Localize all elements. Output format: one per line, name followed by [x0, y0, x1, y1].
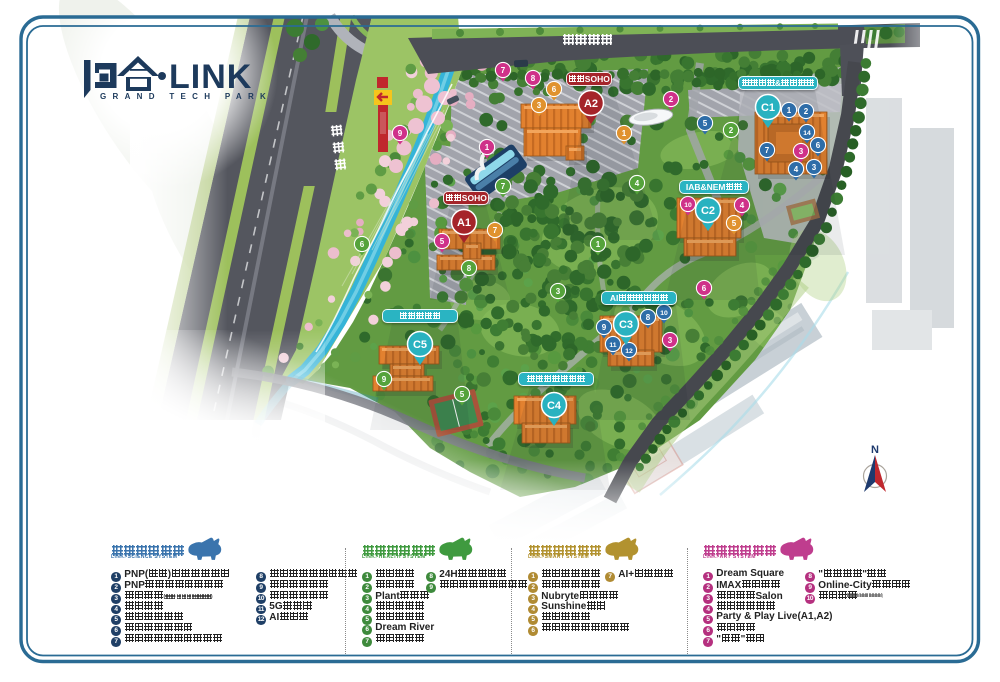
svg-text:9: 9	[602, 323, 607, 332]
svg-text:A1: A1	[457, 217, 471, 229]
svg-text:C1: C1	[761, 102, 775, 114]
svg-text:10: 10	[660, 310, 668, 317]
svg-text:6: 6	[360, 240, 365, 249]
svg-text:3: 3	[556, 287, 561, 296]
svg-text:7: 7	[501, 66, 506, 75]
svg-text:5: 5	[732, 219, 737, 228]
svg-text:7: 7	[493, 226, 498, 235]
svg-text:C5: C5	[413, 339, 427, 351]
svg-text:8: 8	[646, 313, 651, 322]
svg-text:6: 6	[702, 284, 707, 293]
svg-text:3: 3	[668, 336, 673, 345]
svg-text:2: 2	[804, 107, 809, 116]
svg-text:A2: A2	[584, 98, 598, 110]
svg-text:1: 1	[622, 129, 627, 138]
svg-text:6: 6	[816, 141, 821, 150]
svg-text:5: 5	[703, 119, 708, 128]
svg-text:4: 4	[635, 179, 640, 188]
svg-text:11: 11	[609, 342, 616, 349]
svg-text:5: 5	[440, 237, 445, 246]
svg-text:C3: C3	[619, 319, 633, 331]
svg-text:4: 4	[740, 201, 745, 210]
svg-text:7: 7	[765, 146, 770, 155]
svg-text:6: 6	[552, 85, 557, 94]
svg-text:8: 8	[467, 264, 472, 273]
svg-text:9: 9	[382, 375, 387, 384]
svg-text:1: 1	[596, 240, 601, 249]
svg-text:3: 3	[812, 163, 817, 172]
svg-text:12: 12	[625, 348, 633, 355]
svg-text:10: 10	[684, 202, 692, 209]
svg-text:4: 4	[794, 165, 799, 174]
svg-text:14: 14	[803, 130, 811, 137]
svg-text:7: 7	[501, 182, 506, 191]
svg-text:C4: C4	[547, 400, 562, 412]
svg-text:2: 2	[729, 126, 734, 135]
svg-text:2: 2	[669, 95, 674, 104]
svg-text:8: 8	[531, 74, 536, 83]
svg-text:3: 3	[537, 101, 542, 110]
svg-text:9: 9	[398, 129, 403, 138]
svg-text:1: 1	[787, 106, 792, 115]
svg-text:3: 3	[799, 147, 804, 156]
svg-text:N: N	[871, 444, 879, 456]
svg-text:LINK: LINK	[169, 58, 252, 96]
svg-text:C2: C2	[701, 205, 715, 217]
svg-text:1: 1	[485, 143, 490, 152]
svg-text:5: 5	[460, 390, 465, 399]
